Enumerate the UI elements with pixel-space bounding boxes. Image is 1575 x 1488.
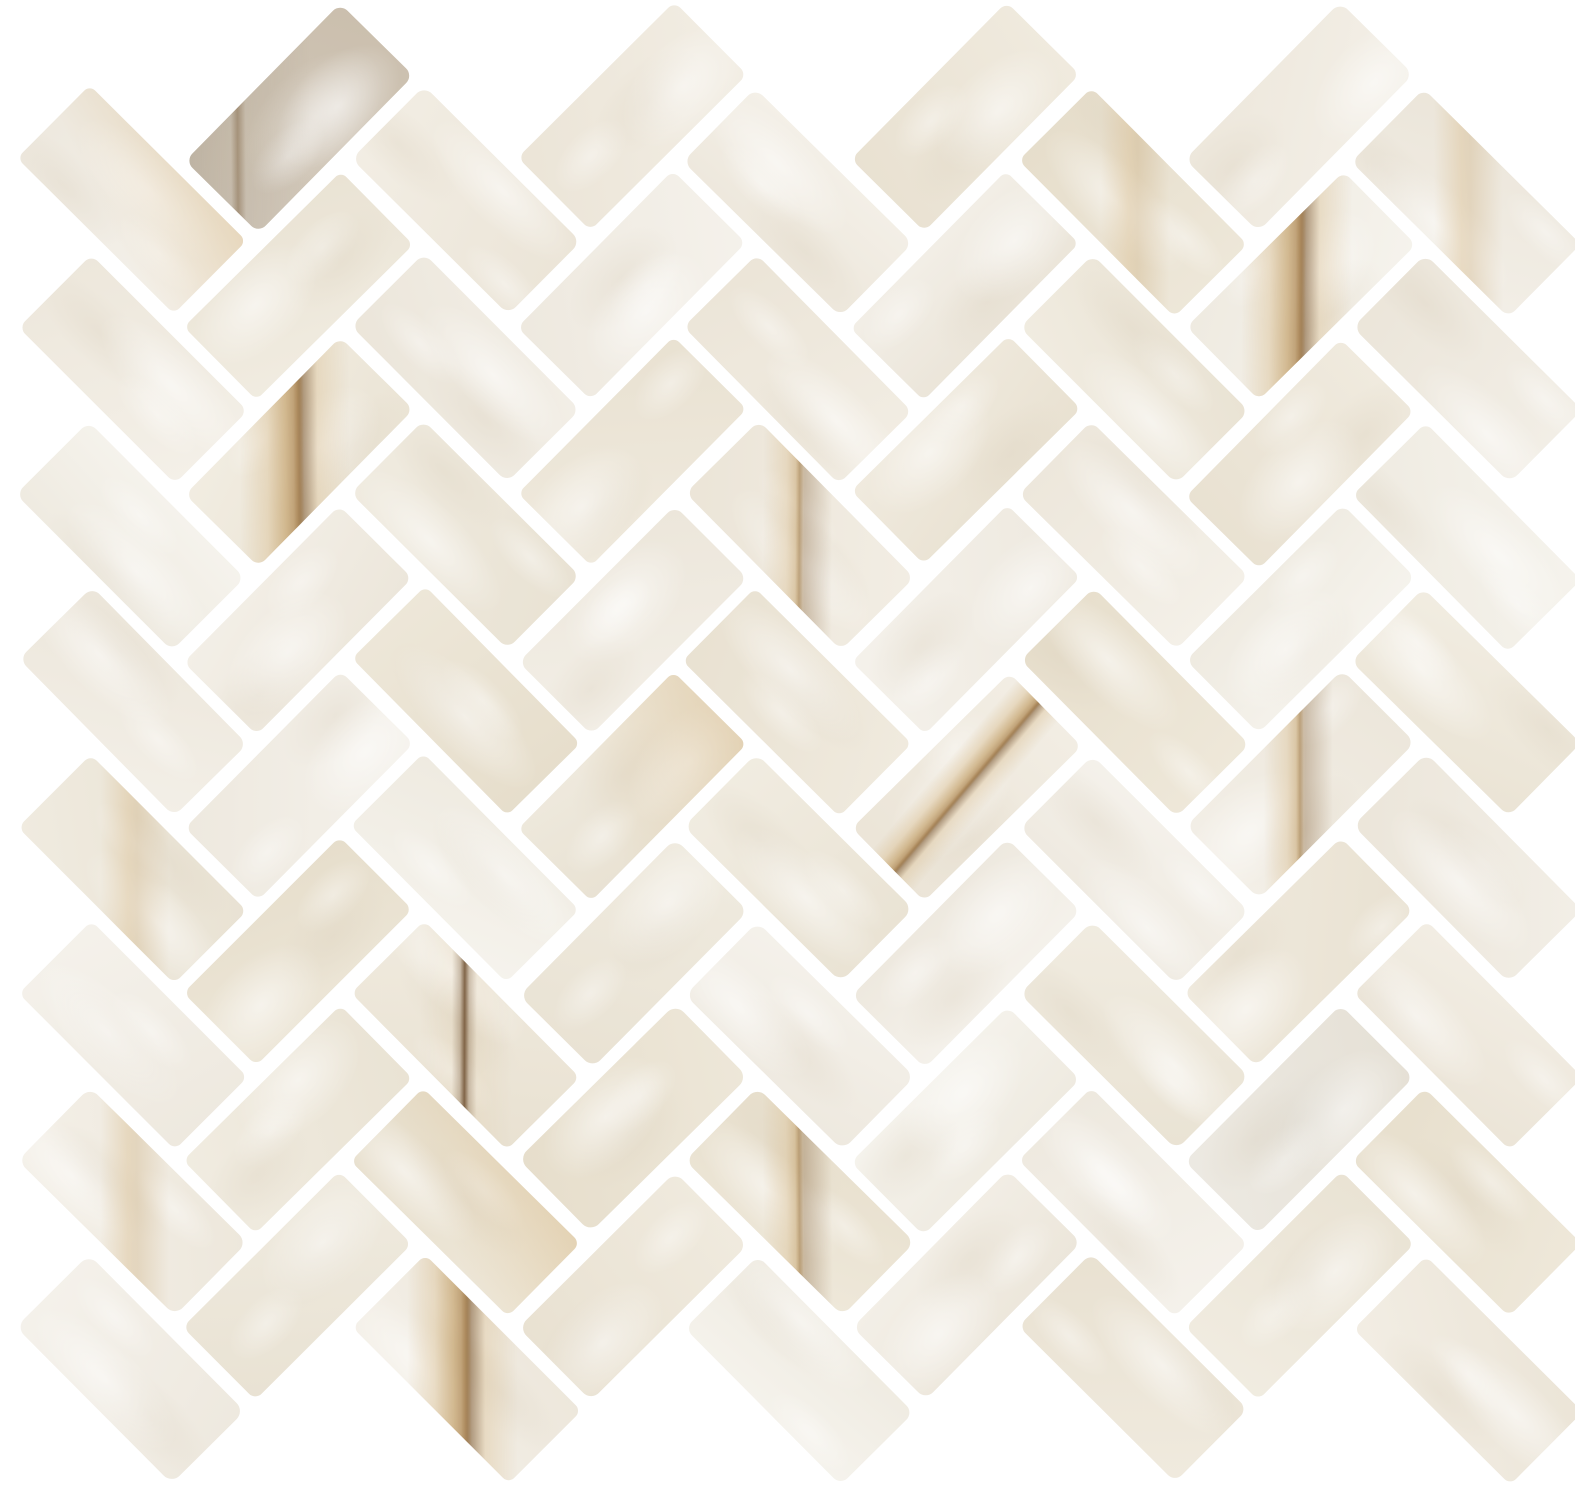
mosaic-tile — [351, 253, 580, 482]
vein-streak — [17, 1087, 247, 1316]
vein-streak — [685, 1087, 915, 1315]
mosaic-tile — [1020, 255, 1249, 484]
vein-streak — [1019, 88, 1248, 317]
mosaic-tile — [18, 921, 247, 1150]
vein-streak — [17, 86, 246, 315]
mosaic-tile — [518, 672, 747, 902]
mosaic-tile — [1185, 1005, 1414, 1234]
vein-streak — [185, 3, 413, 233]
mosaic-tile — [1186, 171, 1416, 400]
mosaic-tile — [683, 588, 912, 817]
mosaic-tile — [350, 753, 579, 982]
mosaic-tile — [1018, 1254, 1247, 1483]
vein-streak — [1185, 1005, 1414, 1234]
mosaic-tile — [17, 1087, 247, 1316]
mosaic-tile — [519, 838, 748, 1067]
mosaic-tile — [16, 421, 245, 650]
mosaic-tile — [852, 839, 1081, 1069]
mosaic-tile — [1019, 88, 1248, 317]
mosaic-tile — [1353, 1088, 1575, 1317]
mosaic-tile — [18, 755, 247, 984]
mosaic-tile — [852, 1170, 1081, 1400]
mosaic-tile — [352, 1255, 581, 1484]
mosaic-tile — [851, 171, 1080, 401]
vein-streak — [686, 420, 915, 650]
mosaic-tile — [351, 421, 580, 650]
mosaic-tile — [1354, 921, 1575, 1150]
mosaic-tile — [183, 171, 413, 400]
mosaic-tile — [183, 1006, 413, 1235]
mosaic-tile — [184, 505, 413, 734]
mosaic-tile — [1020, 587, 1249, 816]
mosaic-tile — [1184, 838, 1414, 1067]
page: { "image": { "description": "herringbone… — [0, 0, 1575, 1488]
mosaic-tile — [1353, 254, 1575, 483]
mosaic-tile — [1019, 1088, 1248, 1317]
vein-streak — [518, 672, 747, 902]
mosaic-tile — [1019, 755, 1248, 984]
mosaic-tile — [1351, 88, 1575, 317]
mosaic-tile — [16, 1254, 245, 1483]
mosaic-tile — [683, 87, 913, 315]
mosaic-tile — [851, 336, 1081, 565]
mosaic-tile — [1351, 588, 1575, 816]
mosaic-tile — [518, 1172, 747, 1401]
mosaic-tile — [852, 504, 1081, 734]
mosaic-tile — [1353, 753, 1575, 982]
mosaic-tile — [1185, 1172, 1414, 1401]
mosaic-tile — [518, 1004, 748, 1233]
mosaic-tile — [184, 337, 413, 567]
vein-streak — [852, 672, 1082, 900]
mosaic-tile — [517, 170, 746, 400]
mosaic-tile — [183, 837, 412, 1066]
vein-streak — [351, 921, 580, 1150]
mosaic-tile — [351, 86, 580, 315]
mosaic-tile — [684, 754, 913, 983]
vein-streak — [1186, 670, 1415, 899]
mosaic-tile — [852, 672, 1082, 900]
mosaic-tile — [518, 506, 747, 735]
mosaic-tile — [1185, 2, 1414, 232]
mosaic-tile — [1186, 339, 1414, 569]
mosaic-tile — [18, 255, 247, 484]
mosaic-tile — [685, 1255, 914, 1484]
mosaic-tile — [185, 671, 414, 900]
mosaic-tile — [19, 587, 247, 817]
mosaic-tile — [185, 3, 413, 233]
mosaic-tile — [851, 2, 1080, 232]
mosaic-tile — [686, 420, 915, 650]
mosaic-tile — [1019, 421, 1249, 650]
mosaic-tile — [1352, 422, 1575, 652]
mosaic-tile — [683, 254, 912, 484]
mosaic-sheet — [0, 0, 1575, 1488]
vein-streak — [184, 337, 413, 567]
vein-streak — [352, 1255, 581, 1484]
mosaic-tile — [851, 1006, 1080, 1235]
mosaic-tile — [685, 921, 915, 1149]
mosaic-tile — [518, 2, 747, 231]
mosaic-tile — [1186, 670, 1415, 899]
vein-streak — [1186, 171, 1416, 400]
mosaic-tile — [183, 1172, 412, 1401]
mosaic-tile — [518, 336, 747, 565]
mosaic-tile — [1019, 921, 1248, 1150]
mosaic-tile — [17, 86, 246, 315]
vein-streak — [1351, 88, 1575, 317]
mosaic-tile — [1353, 1256, 1575, 1485]
mosaic-tile — [351, 921, 580, 1150]
vein-streak — [18, 755, 247, 984]
mosaic-tile — [351, 1088, 581, 1317]
vein-streak — [351, 1088, 581, 1317]
mosaic-tile — [1185, 504, 1414, 733]
mosaic-tile — [685, 1087, 915, 1315]
mosaic-tile — [352, 586, 581, 816]
